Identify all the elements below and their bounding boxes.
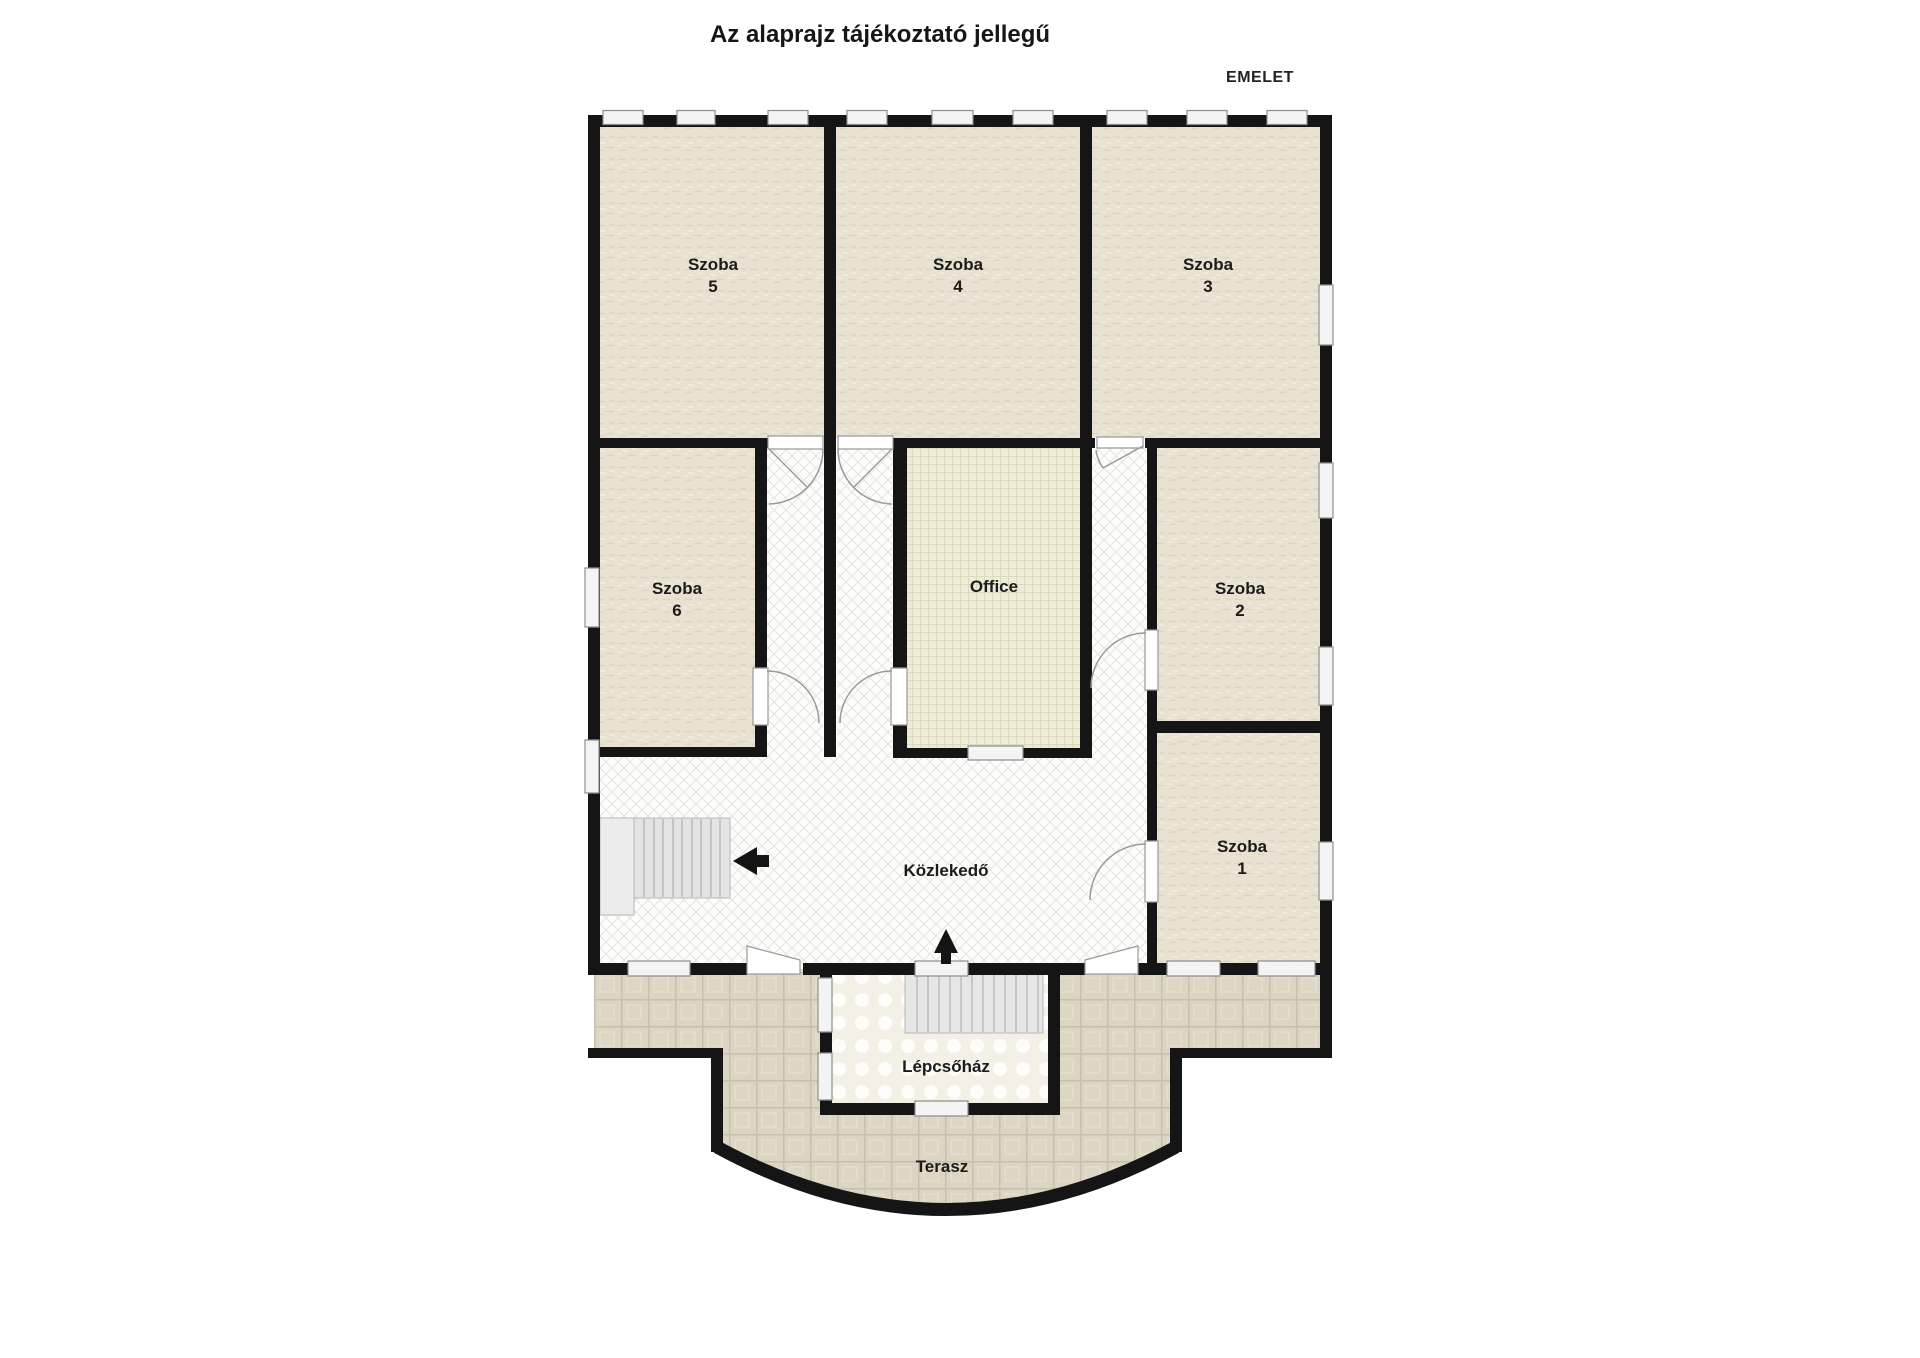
room-number-szoba6: 6	[672, 601, 681, 620]
room-label-szoba6: Szoba	[652, 579, 703, 598]
room-label-szoba2: Szoba	[1215, 579, 1266, 598]
room-label-szoba5: Szoba	[688, 255, 739, 274]
stairwell-run	[905, 973, 1043, 1033]
stair-landing	[600, 818, 634, 915]
room-number-szoba2: 2	[1235, 601, 1244, 620]
stairwell-staircase	[905, 973, 1043, 1033]
room-label-terasz: Terasz	[916, 1157, 969, 1176]
room-label-lepcsohaz: Lépcsőház	[902, 1057, 990, 1076]
room-label-szoba4: Szoba	[933, 255, 984, 274]
room-label-kozlekedo: Közlekedő	[903, 861, 988, 880]
room-label-office: Office	[970, 577, 1018, 596]
room-number-szoba5: 5	[708, 277, 717, 296]
floorplan-page: Az alaprajz tájékoztató jellegű EMELET	[0, 0, 1920, 1358]
room-number-szoba4: 4	[953, 277, 963, 296]
room-number-szoba1: 1	[1237, 859, 1246, 878]
room-label-szoba1: Szoba	[1217, 837, 1268, 856]
floorplan-drawing: Szoba 5 Szoba 4 Szoba 3 Szoba 6 Office S…	[0, 0, 1920, 1358]
room-number-szoba3: 3	[1203, 277, 1212, 296]
office-floor	[907, 448, 1080, 748]
room-label-szoba3: Szoba	[1183, 255, 1234, 274]
